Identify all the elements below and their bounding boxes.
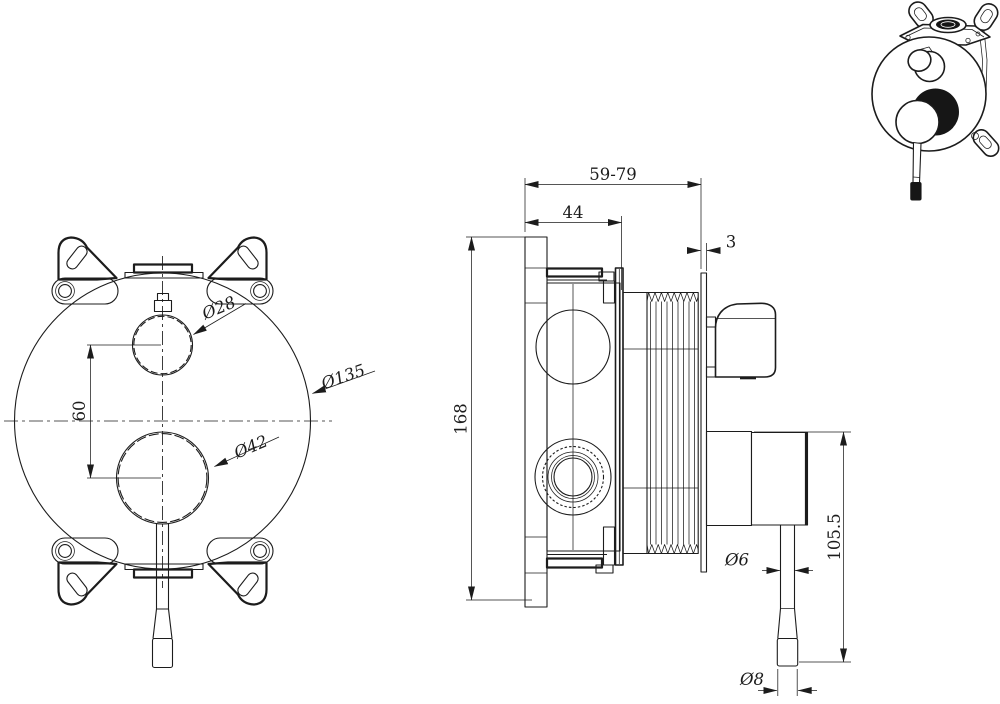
iso-top-boss xyxy=(930,18,966,33)
dim-overall-height-label: 168 xyxy=(452,403,471,435)
dimension-lever-tip-diameter: Ø8 xyxy=(739,669,817,696)
dimension-plate-diameter: Ø135 xyxy=(313,360,376,393)
dim-plate-diameter-label: Ø135 xyxy=(318,360,368,393)
side-view: 59-79 44 3 168 Ø6 xyxy=(440,155,865,704)
front-view: 60 Ø28 Ø135 Ø42 xyxy=(0,225,400,704)
mounting-ear xyxy=(52,238,118,305)
mounting-bracket-bar xyxy=(525,237,547,607)
lever-side xyxy=(707,432,808,667)
dim-knob-spacing-label: 60 xyxy=(70,401,89,422)
isometric-view xyxy=(855,0,1000,210)
dimension-depth-range: 59-79 xyxy=(525,165,701,269)
dimension-overall-height: 168 xyxy=(452,237,546,600)
dimension-knob-spacing: 60 xyxy=(70,345,161,478)
dim-depth-range-label: 59-79 xyxy=(589,165,637,184)
iso-lever xyxy=(911,143,921,201)
dim-bottom-knob-diameter-label: Ø42 xyxy=(230,431,270,462)
dim-lever-rod-diameter-label: Ø6 xyxy=(724,551,749,570)
escutcheon-plate-edge xyxy=(616,268,624,565)
dim-top-knob-diameter-label: Ø28 xyxy=(198,292,238,323)
dimension-wall-plate-thickness: 3 xyxy=(687,233,736,272)
valve-body xyxy=(535,269,620,574)
wall-plate-edge xyxy=(701,273,707,572)
technical-drawing-page: 60 Ø28 Ø135 Ø42 xyxy=(0,0,1000,704)
dimension-bottom-knob-diameter: Ø42 xyxy=(215,431,280,466)
dimension-top-knob-diameter: Ø28 xyxy=(194,292,247,334)
dim-lever-height-label: 105.5 xyxy=(825,513,844,560)
dim-wall-plate-thickness-label: 3 xyxy=(726,233,737,252)
dim-body-depth-label: 44 xyxy=(563,203,584,222)
dimension-lever-rod-diameter: Ø6 xyxy=(724,551,813,571)
dim-lever-tip-diameter-label: Ø8 xyxy=(739,670,764,689)
iso-ear-tab-bottom-right xyxy=(970,126,1000,159)
threaded-collar xyxy=(623,293,698,554)
top-knob-side xyxy=(707,303,776,378)
